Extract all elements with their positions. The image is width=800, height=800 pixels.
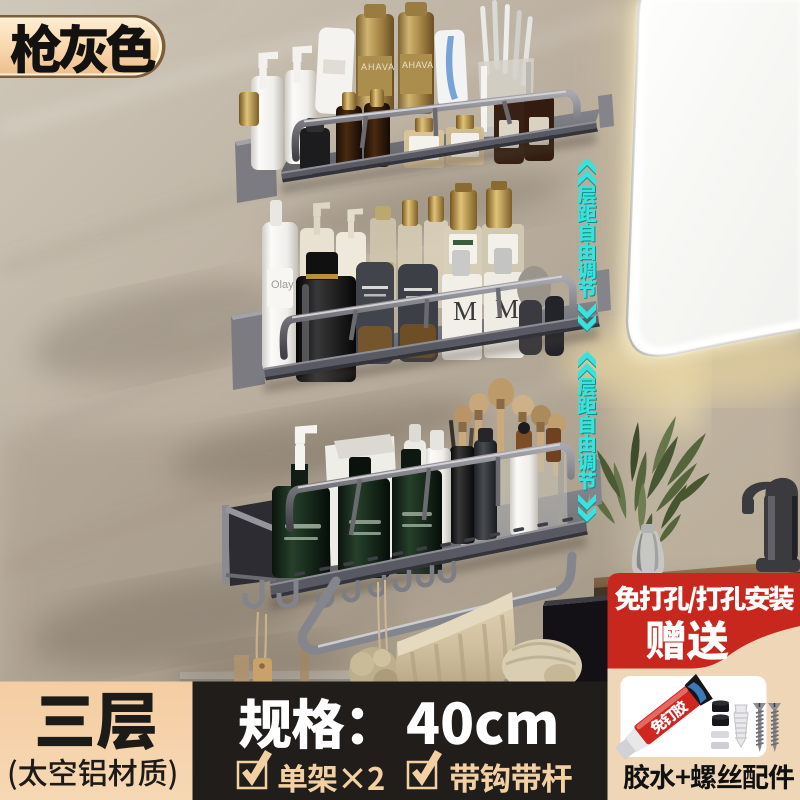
svg-text:Olay: Olay [271,279,294,291]
svg-text:AHAVA: AHAVA [402,60,434,70]
svg-text:AHAVA: AHAVA [361,62,395,72]
svg-text:M: M [453,296,477,326]
